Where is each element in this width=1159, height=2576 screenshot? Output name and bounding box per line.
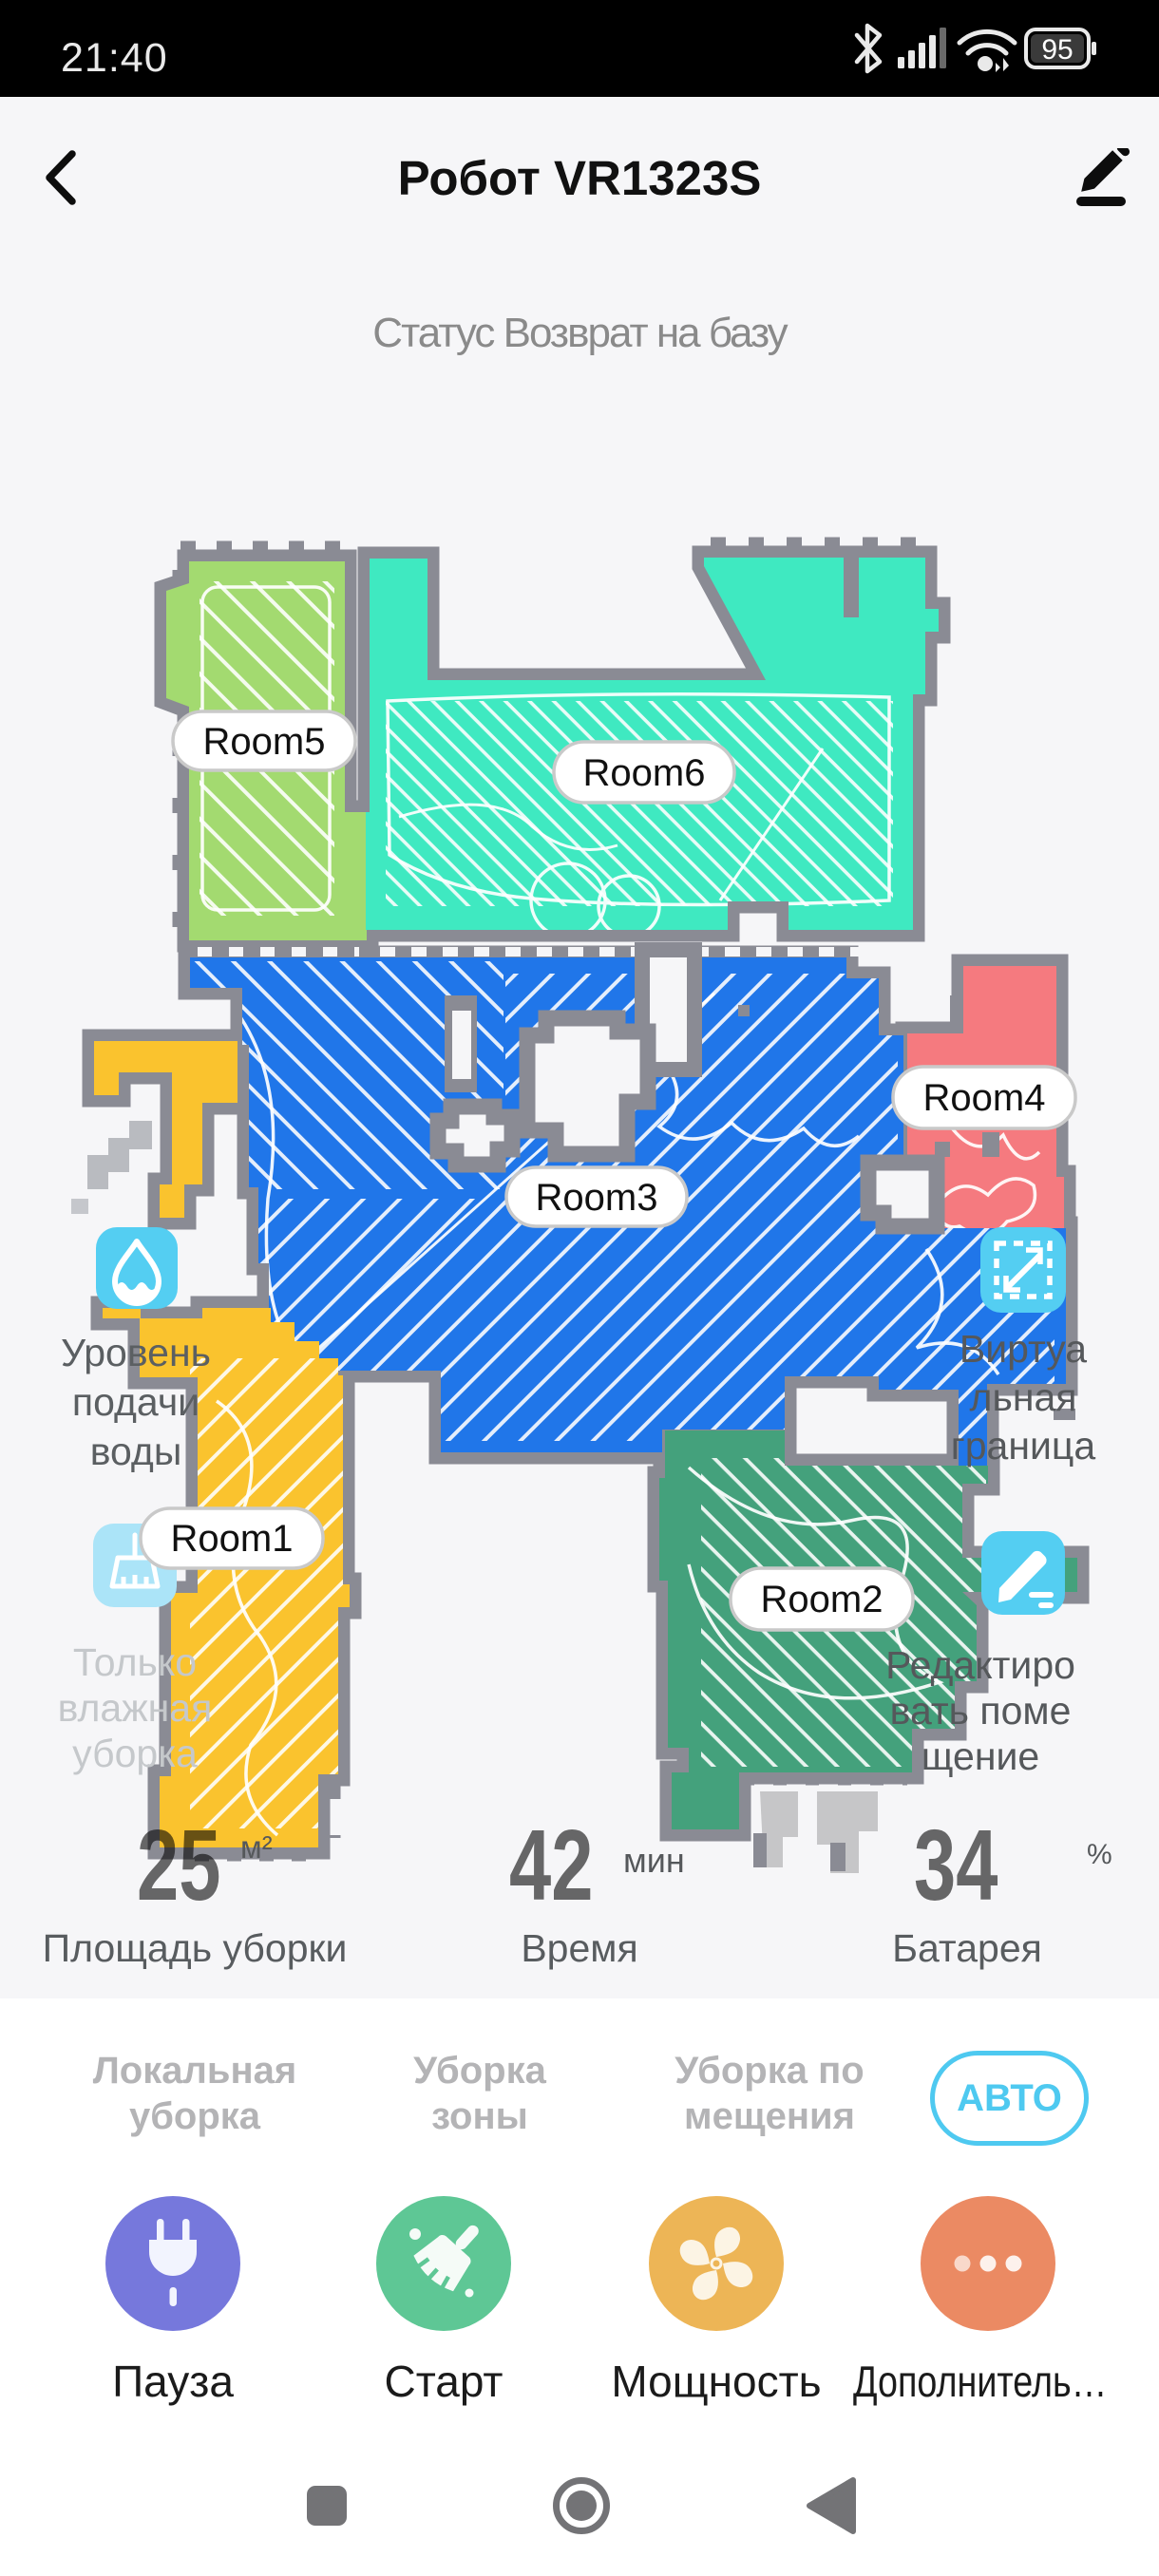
svg-text:Виртуа: Виртуа (959, 1327, 1087, 1371)
svg-text:Room1: Room1 (171, 1518, 294, 1560)
svg-text:Room3: Room3 (536, 1177, 658, 1219)
svg-text:влажная: влажная (58, 1686, 213, 1730)
svg-text:щение: щение (921, 1734, 1039, 1778)
svg-text:подачи: подачи (72, 1380, 199, 1424)
svg-text:Редактиро: Редактиро (885, 1643, 1075, 1687)
svg-text:воды: воды (90, 1430, 182, 1473)
svg-text:вать поме: вать поме (890, 1689, 1072, 1733)
svg-text:уборка: уборка (72, 1732, 198, 1775)
svg-text:льная: льная (970, 1375, 1077, 1419)
svg-text:Room6: Room6 (583, 752, 706, 794)
svg-text:Уровень: Уровень (61, 1331, 211, 1374)
svg-text:граница: граница (951, 1424, 1096, 1468)
svg-text:Room4: Room4 (923, 1077, 1046, 1119)
svg-text:Только: Только (73, 1640, 197, 1684)
svg-text:Room5: Room5 (203, 721, 326, 763)
svg-text:Room2: Room2 (761, 1579, 883, 1620)
svg-text:95: 95 (1041, 34, 1073, 66)
